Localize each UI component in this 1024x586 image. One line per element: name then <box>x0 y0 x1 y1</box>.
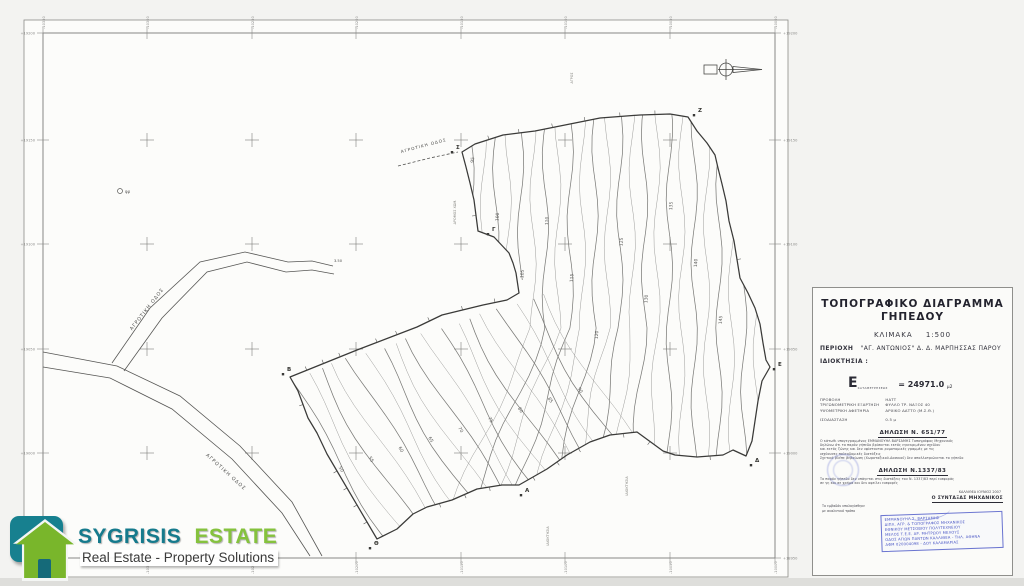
svg-text:95: 95 <box>470 157 476 163</box>
svg-text:-10050: -10050 <box>669 16 673 29</box>
svg-text:φρ: φρ <box>125 189 131 194</box>
drawing-title-line2: ΓΗΠΕΔΟΥ <box>820 311 1005 324</box>
svg-text:-10050: -10050 <box>669 561 673 574</box>
svg-text:-10200: -10200 <box>355 561 359 574</box>
svg-text:105: 105 <box>519 269 526 278</box>
svg-text:+19100: +19100 <box>21 242 36 246</box>
region-value: "ΑΓ. ΑΝΤΩΝΙΟΣ" Δ. Δ. ΜΑΡΠΗΣΣΑΣ ΠΑΡΟΥ <box>861 345 1001 352</box>
svg-text:115: 115 <box>569 273 576 282</box>
area-unit: μ2 <box>947 385 953 390</box>
svg-text:110: 110 <box>544 216 551 225</box>
svg-text:+19050: +19050 <box>21 347 36 351</box>
meta-value: ΑΡΧΙΚΟ ΔΑΤΤΟ (Μ.Σ.Θ.) <box>885 408 934 413</box>
owner-row: ΙΔΙΟΚΤΗΣΙΑ : <box>820 358 1005 365</box>
svg-text:-10000: -10000 <box>774 561 778 574</box>
region-row: ΠΕΡΙΟΧΗ "ΑΓ. ΑΝΤΩΝΙΟΣ" Δ. Δ. ΜΑΡΠΗΣΣΑΣ Π… <box>820 345 1005 352</box>
svg-text:-10150: -10150 <box>460 16 464 29</box>
svg-text:120: 120 <box>594 330 601 339</box>
logo-name-part1: SYGRISIS <box>78 525 181 548</box>
area-symbol: Ε <box>848 375 858 391</box>
meta-value: ΗΑΤΤ <box>885 397 896 402</box>
scale-value: 1:500 <box>926 331 951 339</box>
logo-name-part2: ESTATE <box>195 525 278 548</box>
meta-key: ΥΨΟΜΕΤΡΙΚΗ ΑΦΕΤΗΡΙΑ <box>820 408 884 413</box>
svg-text:-10000: -10000 <box>774 16 778 29</box>
meta-value: ΦΥΛΛΟ ΤΡ. ΝΑΞΟΣ 40 <box>885 402 930 407</box>
title-block: ΤΟΠΟΓΡΑΦΙΚΟ ΔΙΑΓΡΑΜΜΑ ΓΗΠΕΔΟΥ ΚΛΙΜΑΚΑ 1:… <box>812 287 1013 576</box>
declaration-1337-text: ΔΗΛΩΣΗ Ν.1337/83 <box>877 468 949 476</box>
area-subscript: ΚΑΤΑΜΕΤΡΗΣΕΩΣ <box>858 386 888 390</box>
meta-key: ΙΣΟΔΙΑΣΤΑΣΗ <box>820 417 884 422</box>
svg-text:Δ: Δ <box>755 458 760 464</box>
svg-text:-10150: -10150 <box>460 561 464 574</box>
svg-text:-10200: -10200 <box>355 16 359 29</box>
logo-wordmark: SYGRISIS ESTATE <box>78 525 277 549</box>
engineer-stamp: ΕΜΜΑΝΟΥΗΛ Σ. ΒΑΡΣΑΜΗΣ ΔΙΠΛ. ΑΓΡ. & ΤΟΠΟΓ… <box>880 511 1003 552</box>
svg-text:+18950: +18950 <box>783 556 798 560</box>
svg-text:Ε: Ε <box>778 362 782 368</box>
place-date: ΚΑΛΛΙΘΕΑ ΙΟΥΝΙΟΣ 2007 <box>959 490 1001 494</box>
svg-text:ΔΡΟΜΟΣ ΧΩΜ.: ΔΡΟΜΟΣ ΧΩΜ. <box>453 200 457 225</box>
svg-text:+19200: +19200 <box>21 31 36 35</box>
house-door-icon <box>38 559 51 578</box>
svg-text:100: 100 <box>495 212 502 221</box>
svg-text:ΙΔΙΟΚΤΗΣΙΑ: ΙΔΙΟΚΤΗΣΙΑ <box>546 526 550 546</box>
svg-text:-10350: -10350 <box>42 16 46 29</box>
engineer-heading: Ο ΣΥΝΤΑΞΑΣ ΜΗΧΑΝΙΚΟΣ <box>932 496 1003 503</box>
svg-text:3.50: 3.50 <box>334 259 343 263</box>
area-value: = 24971.0 <box>898 380 944 389</box>
sygrisis-estate-logo: SYGRISIS ESTATE Real Estate - Property S… <box>8 512 298 586</box>
scale-label: ΚΛΙΜΑΚΑ <box>874 331 913 339</box>
meta-isodistance: ΙΣΟΔΙΑΣΤΑΣΗ 0.5 μ <box>820 417 1005 422</box>
owner-label: ΙΔΙΟΚΤΗΣΙΑ : <box>820 358 868 365</box>
svg-text:-10100: -10100 <box>564 561 568 574</box>
svg-text:ΙΔΙΟΚΤΗΣΙΑ: ΙΔΙΟΚΤΗΣΙΑ <box>625 476 629 496</box>
round-blue-stamp <box>827 454 859 486</box>
svg-text:125: 125 <box>619 237 626 246</box>
svg-text:+19200: +19200 <box>783 31 798 35</box>
svg-text:135: 135 <box>668 201 675 210</box>
scale-row: ΚΛΙΜΑΚΑ 1:500 <box>820 331 1005 339</box>
svg-text:+19100: +19100 <box>783 242 798 246</box>
declaration-651-text: ΔΗΛΩΣΗ Ν. 651/77 <box>878 430 948 438</box>
svg-text:Α: Α <box>525 488 530 494</box>
svg-text:-10100: -10100 <box>564 16 568 29</box>
area-equation: ΕΚΑΤΑΜΕΤΡΗΣΕΩΣ = 24971.0 μ2 <box>848 375 1005 391</box>
declaration-651-heading: ΔΗΛΩΣΗ Ν. 651/77 <box>820 430 1005 436</box>
svg-text:Β: Β <box>287 367 291 373</box>
logo-tagline: Real Estate - Property Solutions <box>80 550 278 566</box>
svg-text:Σ: Σ <box>456 145 460 151</box>
page-border <box>24 20 788 577</box>
title-block-footer: Το εμβαδόν υπολογίσθηκε με αναλυτικό τρό… <box>820 490 1005 560</box>
svg-text:Γ: Γ <box>492 227 496 233</box>
scanned-topographic-plan: -10350-10350-10300-10300-10250-10250-102… <box>0 0 1024 586</box>
region-label: ΠΕΡΙΟΧΗ <box>820 345 853 352</box>
svg-text:+19050: +19050 <box>783 347 798 351</box>
svg-text:130: 130 <box>643 294 650 303</box>
drawing-title-line1: ΤΟΠΟΓΡΑΦΙΚΟ ΔΙΑΓΡΑΜΜΑ <box>820 298 1005 311</box>
svg-text:+19000: +19000 <box>21 451 36 455</box>
note-line: με αναλυτικό τρόπο <box>822 509 865 514</box>
svg-text:140: 140 <box>693 258 700 267</box>
svg-text:Ζ: Ζ <box>698 108 702 114</box>
svg-text:+19150: +19150 <box>21 138 36 142</box>
svg-text:Θ: Θ <box>374 541 379 547</box>
svg-text:-10300: -10300 <box>146 16 150 29</box>
meta-datum: ΥΨΟΜΕΤΡΙΚΗ ΑΦΕΤΗΡΙΑ ΑΡΧΙΚΟ ΔΑΤΤΟ (Μ.Σ.Θ.… <box>820 408 1005 413</box>
svg-text:+19000: +19000 <box>783 451 798 455</box>
svg-text:-10250: -10250 <box>251 16 255 29</box>
surveyor-note: Το εμβαδόν υπολογίσθηκε με αναλυτικό τρό… <box>822 504 865 513</box>
meta-value: 0.5 μ <box>885 417 896 422</box>
svg-text:ΑΓΡΟΣ: ΑΓΡΟΣ <box>570 72 574 83</box>
svg-text:+19150: +19150 <box>783 138 798 142</box>
svg-text:145: 145 <box>718 315 725 324</box>
